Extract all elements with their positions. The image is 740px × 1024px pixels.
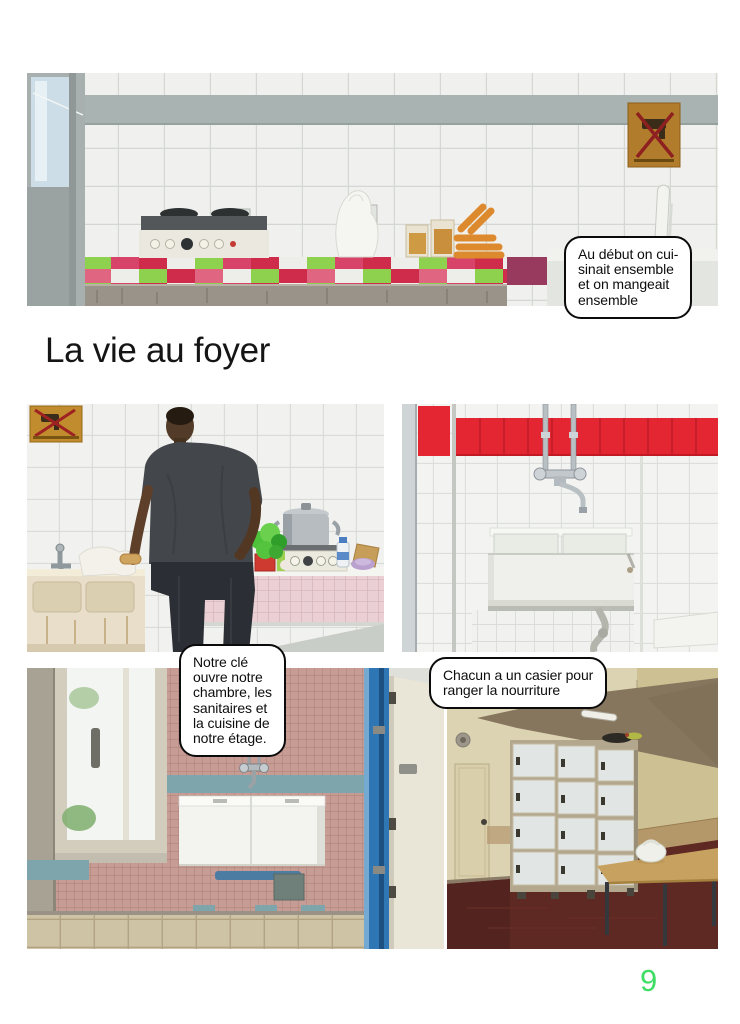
- page-title: La vie au foyer: [45, 331, 270, 371]
- blue-door-frame: [364, 668, 389, 949]
- red-tile-band: [456, 418, 718, 456]
- under-sink-tiles: [472, 606, 634, 652]
- page-number: 9: [640, 963, 657, 999]
- red-tile-sink-illustration: [402, 404, 718, 652]
- man-cooking-illustration: [27, 404, 384, 652]
- photo-food-lockers-room: [447, 668, 718, 949]
- speech-bubble-cooking: Au début on cui- sinait ensemble et on m…: [564, 236, 692, 319]
- photo-double-sink-red-tiles: [402, 404, 718, 652]
- lockers-room-illustration: [447, 668, 718, 949]
- wood-patch: [487, 826, 514, 844]
- speech-bubble-locker: Chacun a un casier pour ranger la nourri…: [429, 657, 607, 709]
- open-door: [389, 668, 444, 949]
- photo-man-cooking-at-sink: [27, 404, 384, 652]
- magazine-page: La vie au foyer Au début on cui- sinait …: [0, 0, 740, 1024]
- speech-bubble-key: Notre clé ouvre notre chambre, les sanit…: [179, 644, 286, 757]
- purple-bowl: [351, 558, 375, 570]
- window-left: [27, 73, 85, 306]
- egg: [280, 560, 290, 570]
- wall-corner: [640, 456, 643, 652]
- warning-sign: [30, 406, 82, 442]
- floor: [27, 911, 389, 949]
- room-door: [455, 764, 489, 880]
- twin-basins: [179, 796, 325, 866]
- blue-tile-stripe: [159, 775, 364, 793]
- wall-lamp: [456, 733, 470, 747]
- warning-sign: [628, 103, 680, 167]
- blue-stripe-low: [27, 860, 89, 880]
